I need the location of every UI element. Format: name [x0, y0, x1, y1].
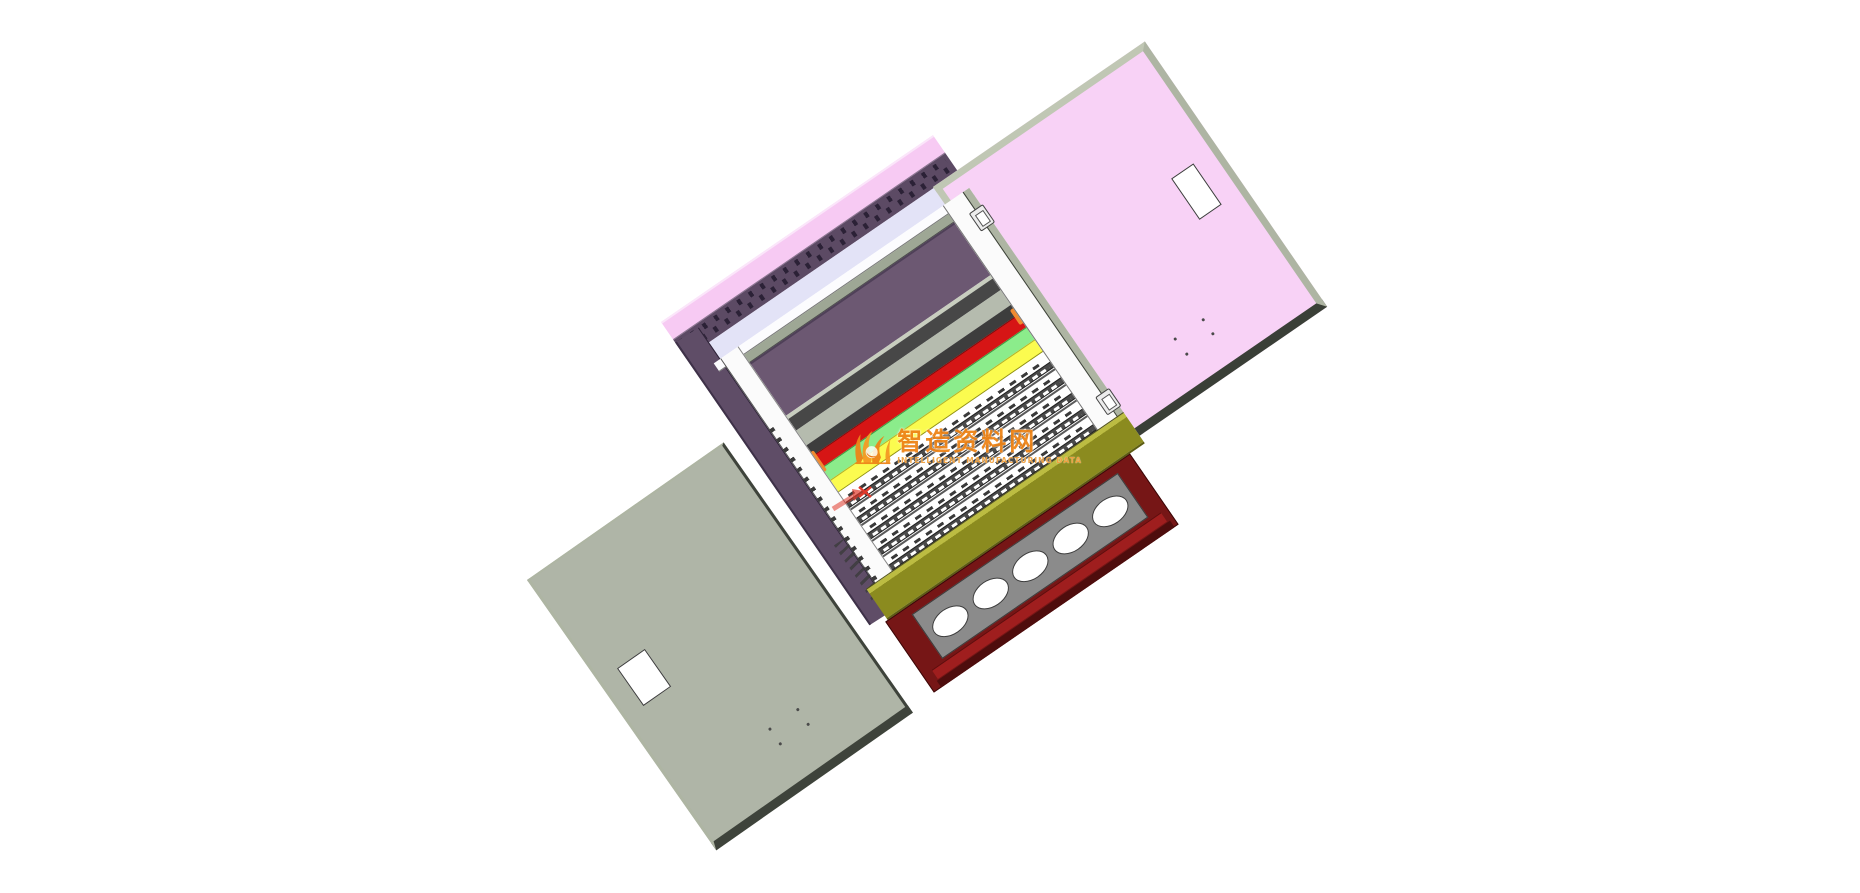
gland-oval-hole [1086, 488, 1134, 533]
watermark-title: 智造资料网 [897, 429, 1082, 454]
gland-oval-hole [966, 571, 1014, 616]
door-hole-dot [1185, 352, 1189, 356]
door-hole-dot [1201, 318, 1205, 322]
door-hole-dot [806, 722, 810, 726]
gland-oval-hole [926, 598, 974, 643]
rear-door-window-cutout [617, 649, 671, 706]
cad-viewport: 智造资料网 INTELLIGENT MANUFACTURING DATA [0, 0, 1860, 893]
selection-cursor-icon [830, 480, 876, 512]
gland-oval-hole [1046, 516, 1094, 561]
door-hole-dot [768, 727, 772, 731]
gland-oval-hole [1006, 543, 1054, 588]
door-hole-dot [796, 708, 800, 712]
watermark: 智造资料网 INTELLIGENT MANUFACTURING DATA [852, 424, 1082, 470]
door-hole-dot [1211, 332, 1215, 336]
door-hole-dot [778, 742, 782, 746]
door-hole-dot [1173, 337, 1177, 341]
watermark-flame-logo-icon [852, 426, 891, 468]
front-door-window-cutout [1171, 163, 1222, 219]
watermark-tagline: INTELLIGENT MANUFACTURING DATA [897, 457, 1082, 465]
